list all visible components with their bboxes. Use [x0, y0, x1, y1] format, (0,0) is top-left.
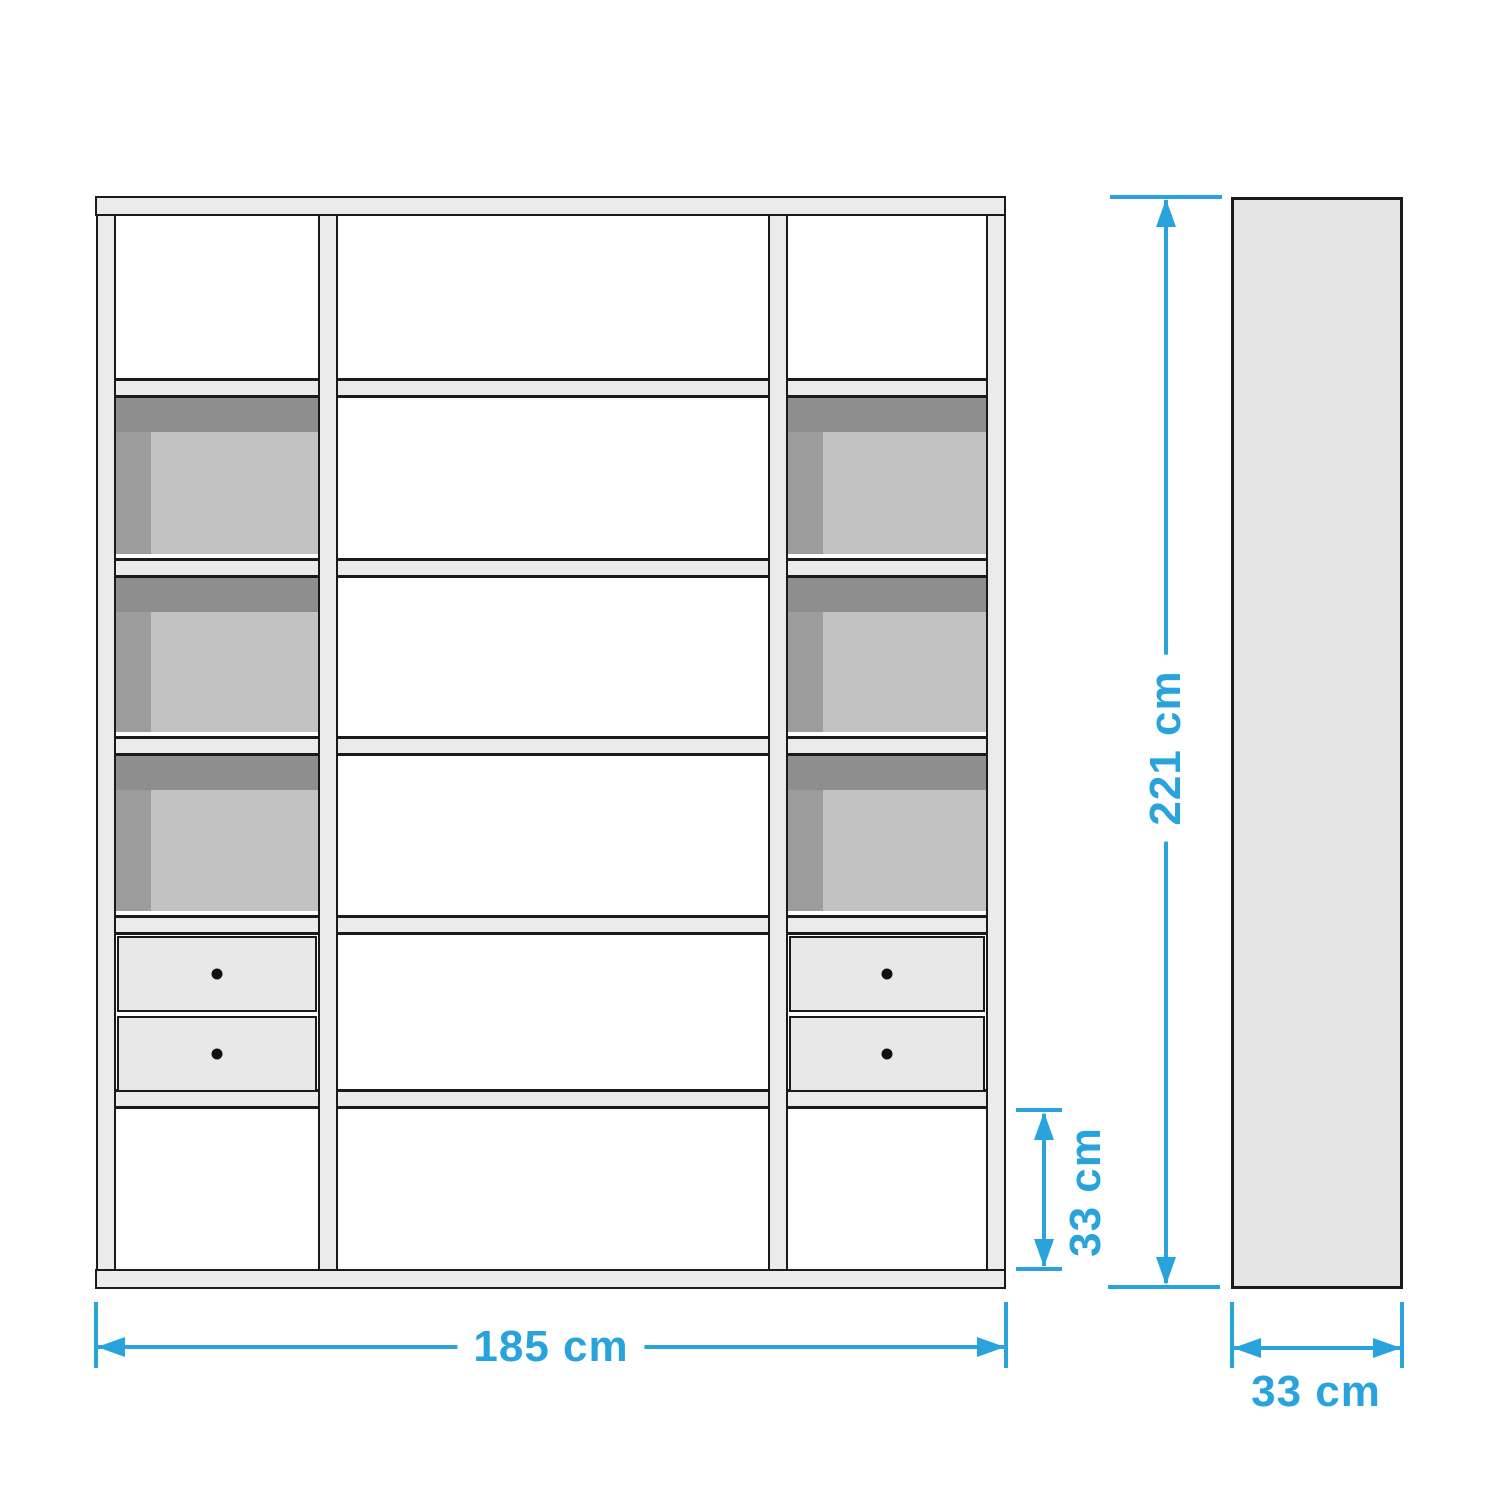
arrowhead-up-icon: [1156, 199, 1176, 227]
arrowhead-left-icon: [1233, 1338, 1261, 1358]
box-inside-back: [788, 398, 986, 432]
storage-box: [788, 398, 986, 554]
shelf-right-3: [788, 736, 986, 756]
shelf-middle-3: [338, 736, 768, 756]
divider-left: [318, 214, 338, 1271]
drawer: [789, 1016, 985, 1092]
box-inside-side: [788, 612, 823, 732]
width-extension-line-right: [1004, 1302, 1008, 1368]
box-inside-back: [116, 578, 318, 612]
box-inside-side: [116, 790, 151, 911]
box-inside-back: [116, 756, 318, 790]
width-dimension-label: 185 cm: [457, 1321, 644, 1373]
arrowhead-down-icon: [1034, 1239, 1054, 1267]
divider-right: [768, 214, 788, 1271]
furniture-dimension-diagram: 221 cm 33 cm 185 cm 33 cm: [0, 0, 1500, 1500]
box-inside-back: [788, 756, 986, 790]
shelf-middle-4: [338, 915, 768, 935]
width-extension-line-left: [94, 1302, 98, 1368]
box-front-face: [151, 790, 318, 911]
drawer-knob-icon: [882, 969, 893, 980]
box-front-face: [823, 790, 986, 911]
depth-extension-line-left: [1230, 1302, 1234, 1368]
arrowhead-right-icon: [1373, 1338, 1401, 1358]
compartment-extension-line-bottom: [1016, 1267, 1062, 1271]
arrowhead-left-icon: [97, 1337, 125, 1357]
arrowhead-right-icon: [977, 1337, 1005, 1357]
depth-extension-line-right: [1400, 1302, 1404, 1368]
box-front-face: [823, 432, 986, 554]
box-inside-side: [116, 612, 151, 732]
right-side-wall: [986, 214, 1006, 1271]
shelf-left-4: [116, 915, 318, 935]
shelf-left-2: [116, 558, 318, 578]
storage-box: [116, 756, 318, 911]
box-inside-side: [788, 432, 823, 554]
left-side-wall: [96, 214, 116, 1271]
shelf-middle-2: [338, 558, 768, 578]
shelf-right-1: [788, 378, 986, 398]
storage-box: [116, 398, 318, 554]
storage-box: [116, 578, 318, 732]
drawer: [789, 936, 985, 1012]
height-extension-line-bottom: [1108, 1285, 1220, 1289]
shelf-right-2: [788, 558, 986, 578]
box-inside-side: [788, 790, 823, 911]
shelf-left-5: [116, 1089, 318, 1109]
shelf-left-1: [116, 378, 318, 398]
compartment-dimension-label: 33 cm: [1064, 1127, 1108, 1257]
bottom-plinth: [95, 1269, 1006, 1289]
box-front-face: [151, 432, 318, 554]
top-panel: [95, 196, 1006, 216]
shelf-middle-1: [338, 378, 768, 398]
box-inside-back: [116, 398, 318, 432]
shelf-right-4: [788, 915, 986, 935]
drawer: [117, 1016, 317, 1092]
depth-dimension-label: 33 cm: [1251, 1370, 1381, 1414]
drawer-knob-icon: [212, 1049, 223, 1060]
drawer-knob-icon: [882, 1049, 893, 1060]
height-dimension-label: 221 cm: [1140, 654, 1192, 841]
arrowhead-up-icon: [1034, 1112, 1054, 1140]
shelf-middle-5: [338, 1089, 768, 1109]
box-front-face: [823, 612, 986, 732]
side-view-panel: [1231, 197, 1403, 1289]
box-inside-side: [116, 432, 151, 554]
storage-box: [788, 756, 986, 911]
shelf-left-3: [116, 736, 318, 756]
storage-box: [788, 578, 986, 732]
box-inside-back: [788, 578, 986, 612]
arrowhead-down-icon: [1156, 1257, 1176, 1285]
drawer-knob-icon: [212, 969, 223, 980]
box-front-face: [151, 612, 318, 732]
shelf-right-5: [788, 1089, 986, 1109]
drawer: [117, 936, 317, 1012]
